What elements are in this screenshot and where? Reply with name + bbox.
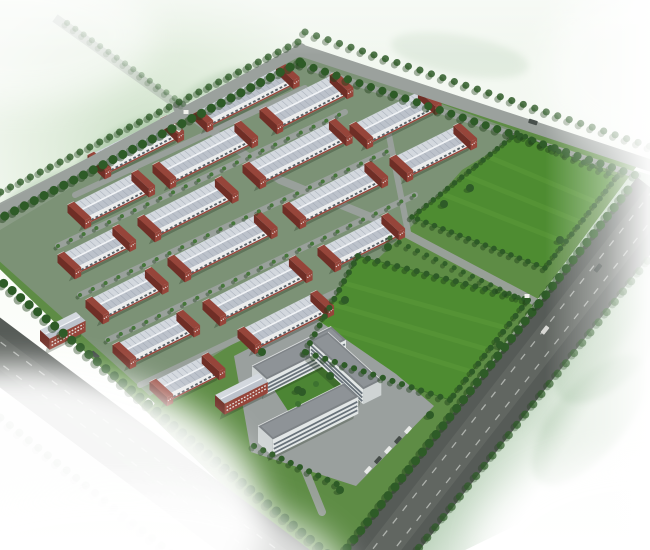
tree (466, 184, 474, 192)
industrial-park-rendering: Aerial isometric 3D rendering of an indu… (0, 0, 650, 550)
courtyard-tree (326, 372, 334, 380)
tree (258, 348, 266, 356)
tree (426, 411, 434, 419)
right-edge-fade (540, 0, 650, 550)
courtyard-tree (295, 401, 301, 407)
gate-sign (525, 294, 530, 298)
tree (336, 486, 344, 494)
tree (341, 296, 349, 304)
rendering-canvas: Aerial isometric 3D rendering of an indu… (0, 0, 650, 550)
tree (440, 200, 448, 208)
tree (294, 386, 302, 394)
courtyard-tree (313, 381, 319, 387)
gate-sign (184, 110, 189, 114)
top-edge-fade (0, 0, 650, 55)
tree (496, 341, 504, 349)
tree (384, 243, 392, 251)
